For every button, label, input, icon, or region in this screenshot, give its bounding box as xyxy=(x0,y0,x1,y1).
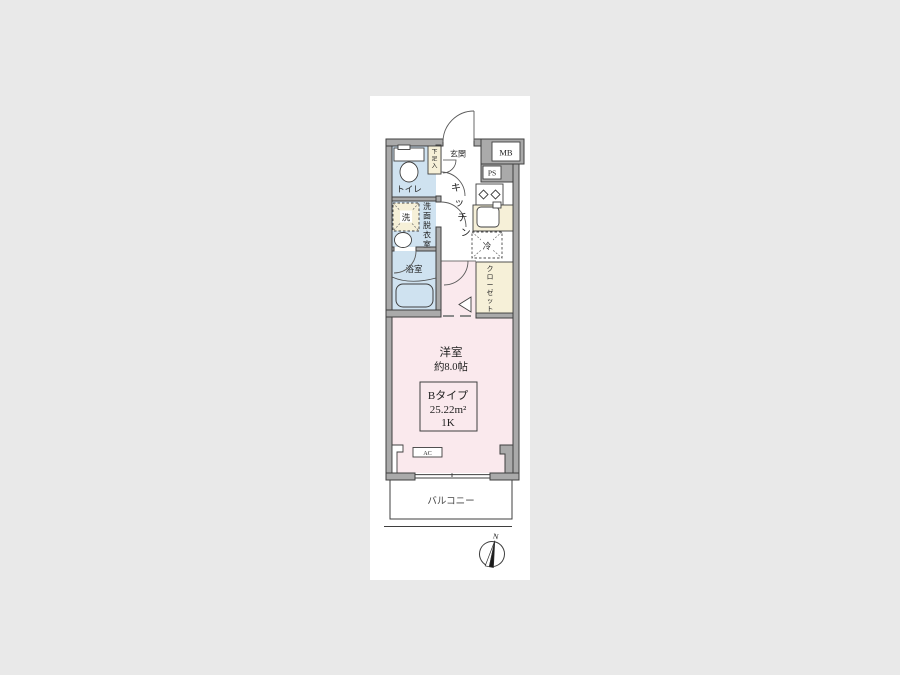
wall-segment xyxy=(513,164,519,480)
bathroom-label: 浴室 xyxy=(405,264,423,274)
entrance-label: 玄関 xyxy=(450,149,466,159)
closet xyxy=(476,262,513,313)
wall-segment xyxy=(392,197,436,201)
floor-plan-drawing: MB PS 玄関 下足入 トイレ 洗 洗面脱衣室 浴室 xyxy=(0,0,900,675)
wall-segment xyxy=(392,247,394,251)
unit-area-label: 25.22m² xyxy=(430,404,467,416)
wall-segment xyxy=(436,227,441,310)
washroom-label: 洗面脱衣室 xyxy=(423,201,431,249)
toilet-label: トイレ xyxy=(396,184,422,194)
kitchen-tap xyxy=(493,202,501,208)
unit-type-label: Bタイプ xyxy=(428,389,468,402)
air-conditioner-label: AC xyxy=(423,450,432,457)
pipe-shaft-label: PS xyxy=(488,169,496,178)
wall-segment xyxy=(386,473,415,480)
washing-machine-label: 洗 xyxy=(402,213,411,223)
toilet-bowl xyxy=(400,162,418,182)
balcony-label: バルコニー xyxy=(427,496,474,507)
kitchen-sink xyxy=(477,207,499,227)
shoe-cabinet-label: 下足入 xyxy=(432,149,438,170)
refrigerator-label: 冷 xyxy=(483,241,492,251)
wall-segment xyxy=(490,473,519,480)
wall-segment xyxy=(474,139,481,146)
main-room-size-label: 約8.0帖 xyxy=(434,360,469,373)
wall-segment xyxy=(386,139,443,146)
unit-layout-label: 1K xyxy=(441,417,455,429)
wall-segment xyxy=(436,196,441,202)
wall-segment xyxy=(476,313,513,318)
wall-segment xyxy=(386,310,441,317)
basin xyxy=(395,233,412,248)
meter-box-label: MB xyxy=(499,148,513,158)
main-room-label: 洋室 xyxy=(440,345,463,359)
toilet-handle xyxy=(398,145,410,150)
floor-plan-page: MB PS 玄関 下足入 トイレ 洗 洗面脱衣室 浴室 xyxy=(0,0,900,675)
